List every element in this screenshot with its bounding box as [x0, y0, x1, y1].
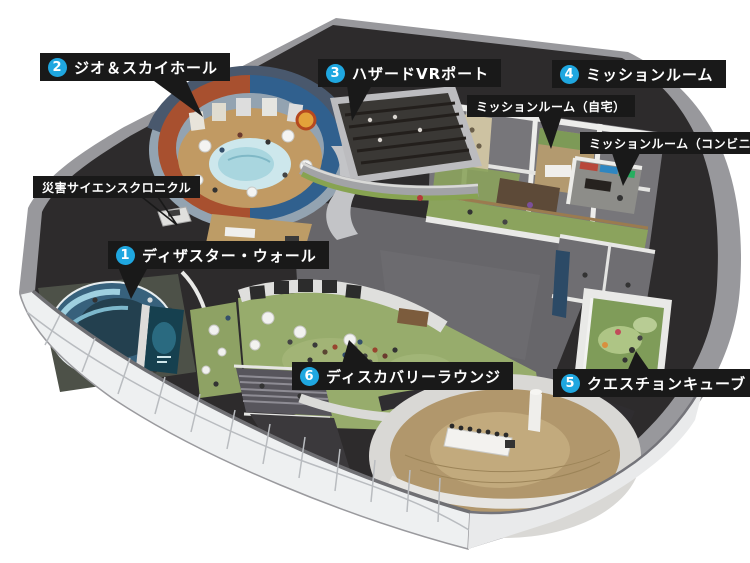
mission-room-konbini-area: [568, 158, 642, 214]
museum-floor-map: 2 ジオ＆スカイホール 3 ハザードVRポート 4 ミッションルーム ミッション…: [0, 0, 750, 563]
label-text: ディスカバリーラウンジ: [326, 366, 501, 387]
label-text: ミッションルーム（自宅）: [476, 98, 626, 115]
label-hazard-vr-port: 3 ハザードVRポート: [318, 59, 501, 87]
label-text: ジオ＆スカイホール: [74, 57, 218, 78]
number-badge-4: 4: [560, 65, 579, 84]
label-discovery-lounge: 6 ディスカバリーラウンジ: [292, 362, 513, 390]
label-mission-room-konbini: ミッションルーム（コンビニ）: [580, 132, 750, 154]
number-badge-5: 5: [561, 374, 580, 393]
label-mission-room: 4 ミッションルーム: [552, 60, 726, 88]
label-geo-sky-hall: 2 ジオ＆スカイホール: [40, 53, 230, 81]
label-text: 災害サイエンスクロニクル: [42, 179, 191, 196]
label-text: クエスチョンキューブ: [587, 373, 746, 394]
label-text: ディザスター・ウォール: [142, 245, 317, 266]
label-text: ミッションルーム（コンビニ）: [589, 135, 750, 152]
number-badge-3: 3: [326, 64, 345, 83]
label-mission-room-home: ミッションルーム（自宅）: [467, 95, 635, 117]
banner-wall: [136, 304, 184, 374]
label-question-cube: 5 クエスチョンキューブ: [553, 369, 750, 397]
number-badge-6: 6: [300, 367, 319, 386]
label-science-chronicle: 災害サイエンスクロニクル: [33, 176, 200, 198]
label-disaster-wall: 1 ディザスター・ウォール: [108, 241, 329, 269]
number-badge-2: 2: [48, 58, 67, 77]
number-badge-1: 1: [116, 246, 135, 265]
label-text: ハザードVRポート: [352, 63, 489, 84]
label-text: ミッションルーム: [586, 64, 714, 85]
